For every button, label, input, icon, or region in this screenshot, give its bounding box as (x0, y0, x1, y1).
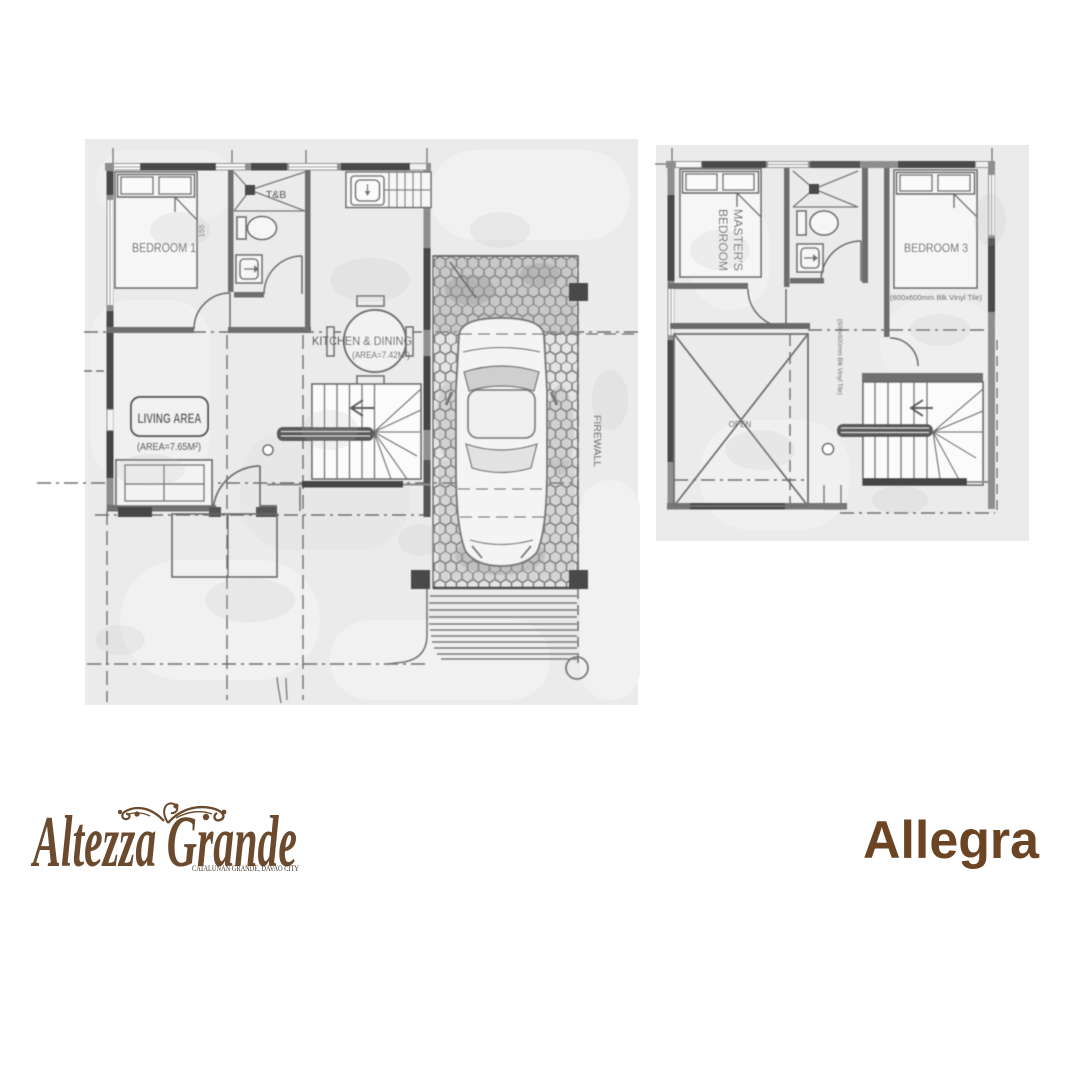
svg-text:KITCHEN & DINING: KITCHEN & DINING (312, 334, 412, 348)
svg-text:(AREA=7.42M²): (AREA=7.42M²) (352, 350, 410, 361)
svg-text:Allegra: Allegra (863, 811, 1040, 870)
svg-text:(600x600mm Blk Vinyl Tile): (600x600mm Blk Vinyl Tile) (890, 295, 982, 302)
svg-text:CATALUNAN GRANDE, DAVAO CITY: CATALUNAN GRANDE, DAVAO CITY (192, 864, 299, 873)
svg-text:T&B: T&B (266, 189, 286, 201)
svg-text:OPEN: OPEN (729, 420, 752, 429)
svg-text:BEDROOM 3: BEDROOM 3 (904, 241, 968, 255)
svg-text:(AREA=7.65M²): (AREA=7.65M²) (137, 441, 201, 453)
svg-text:LIVING AREA: LIVING AREA (138, 410, 202, 426)
svg-text:(600x600mm Blk Vinyl Tile): (600x600mm Blk Vinyl Tile) (836, 319, 843, 395)
